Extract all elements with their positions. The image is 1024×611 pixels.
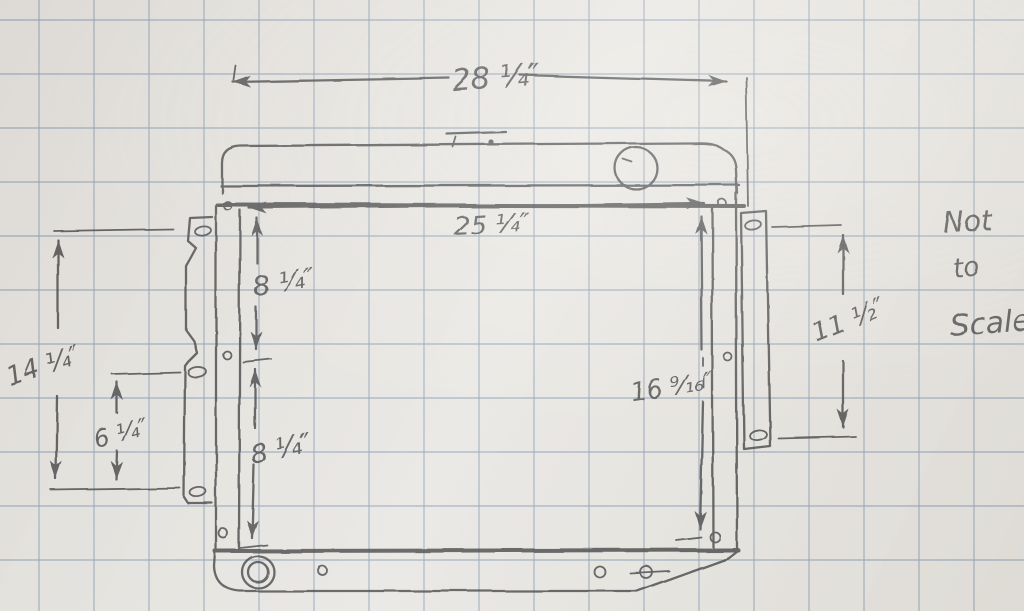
dim-arrow-up [701, 216, 702, 350]
extension-line [51, 488, 180, 490]
dim-line [520, 75, 726, 81]
dim-label-right-mount-height: 16 ⁹⁄₁₆″ [629, 366, 716, 406]
dim-tick [240, 545, 267, 548]
petcock-handle [630, 571, 669, 573]
bolt-hole-bottom-right [710, 532, 720, 542]
extension-line [746, 77, 748, 206]
extension-line [112, 372, 180, 374]
right-bracket-hole-top [744, 219, 761, 231]
dim-label-overall-width: 28 ¼″ [451, 58, 542, 99]
dim-left-hole-chain: 8 ¼″ 8 ¼″ [240, 218, 317, 548]
bottom-hole-left [318, 566, 327, 575]
bottom-hole-right [595, 567, 606, 578]
filler-cap-icon [615, 147, 657, 189]
dim-right-mount-height: 16 ⁹⁄₁₆″ [629, 216, 716, 540]
top-mounting-tab [447, 132, 506, 134]
dim-line [233, 78, 449, 82]
dim-label-core-mount-width: 25 ¼″ [453, 208, 531, 242]
bottom-tank [214, 550, 738, 591]
graph-paper-photo: 28 ¼″ 25 ¼″ 8 ¼″ 8 ¼″ [0, 0, 1024, 611]
bolt-hole-mid-right [724, 353, 732, 361]
dim-arrow-down [252, 465, 254, 538]
extension-line [778, 436, 855, 438]
pencil-layer: 28 ¼″ 25 ¼″ 8 ¼″ 8 ¼″ [3, 58, 1024, 591]
tab-rivet [488, 139, 493, 144]
extension-tick [234, 66, 236, 80]
note-line-1: Not [942, 204, 994, 240]
dim-right-bracket-hole-spacing: 11 ½″ [772, 225, 890, 438]
dim-tick [676, 537, 701, 540]
bolt-hole-bottom-left [219, 529, 228, 538]
left-bracket-outline [184, 217, 212, 503]
right-bracket-hole-bottom [749, 429, 767, 441]
left-bracket-hole-bottom [189, 486, 206, 497]
top-tank-seam [221, 185, 739, 186]
note-line-2: to [952, 252, 981, 285]
note-line-3: Scale [949, 303, 1024, 344]
top-tank [217, 132, 744, 206]
filler-cap-tick [623, 159, 632, 162]
extension-line [772, 225, 841, 227]
drain-outlet-outer [242, 556, 274, 588]
right-bracket [741, 211, 770, 449]
core-bottom-flange [215, 550, 738, 551]
dim-core-mount-width: 25 ¼″ [249, 203, 704, 242]
drain-outlet-inner [248, 562, 268, 582]
dim-label-lower-left: 8 ¼″ [248, 428, 315, 471]
dim-arrow-down [116, 451, 117, 479]
left-bracket-hole-mid [188, 366, 207, 378]
dim-arrow-down [700, 402, 703, 529]
dim-arrow-down [56, 396, 57, 479]
dim-left-bracket-hole-spacing: 6 ¼″ [91, 372, 180, 479]
bolt-hole-mid-left [223, 351, 231, 359]
left-bracket [184, 217, 212, 503]
dim-label-left-bracket-hole-spacing: 6 ¼″ [91, 413, 152, 454]
right-channel-outer [736, 193, 737, 550]
radiator-dimension-sketch: 28 ¼″ 25 ¼″ 8 ¼″ 8 ¼″ [0, 0, 1024, 611]
right-bracket-outline [741, 211, 770, 449]
dim-label-left-bracket-height: 14 ¼″ [3, 340, 85, 392]
dim-tick [243, 359, 271, 362]
left-channel-inner [239, 210, 240, 551]
extension-line [54, 229, 173, 231]
dim-label-upper-left: 8 ¼″ [250, 262, 316, 303]
left-bracket-hole-top [194, 225, 211, 236]
not-to-scale-note: Not to Scale [942, 204, 1024, 344]
dim-label-right-bracket-hole-spacing: 11 ½″ [808, 292, 890, 348]
core-frame [216, 193, 737, 551]
dim-left-bracket-height: 14 ¼″ [3, 229, 180, 490]
